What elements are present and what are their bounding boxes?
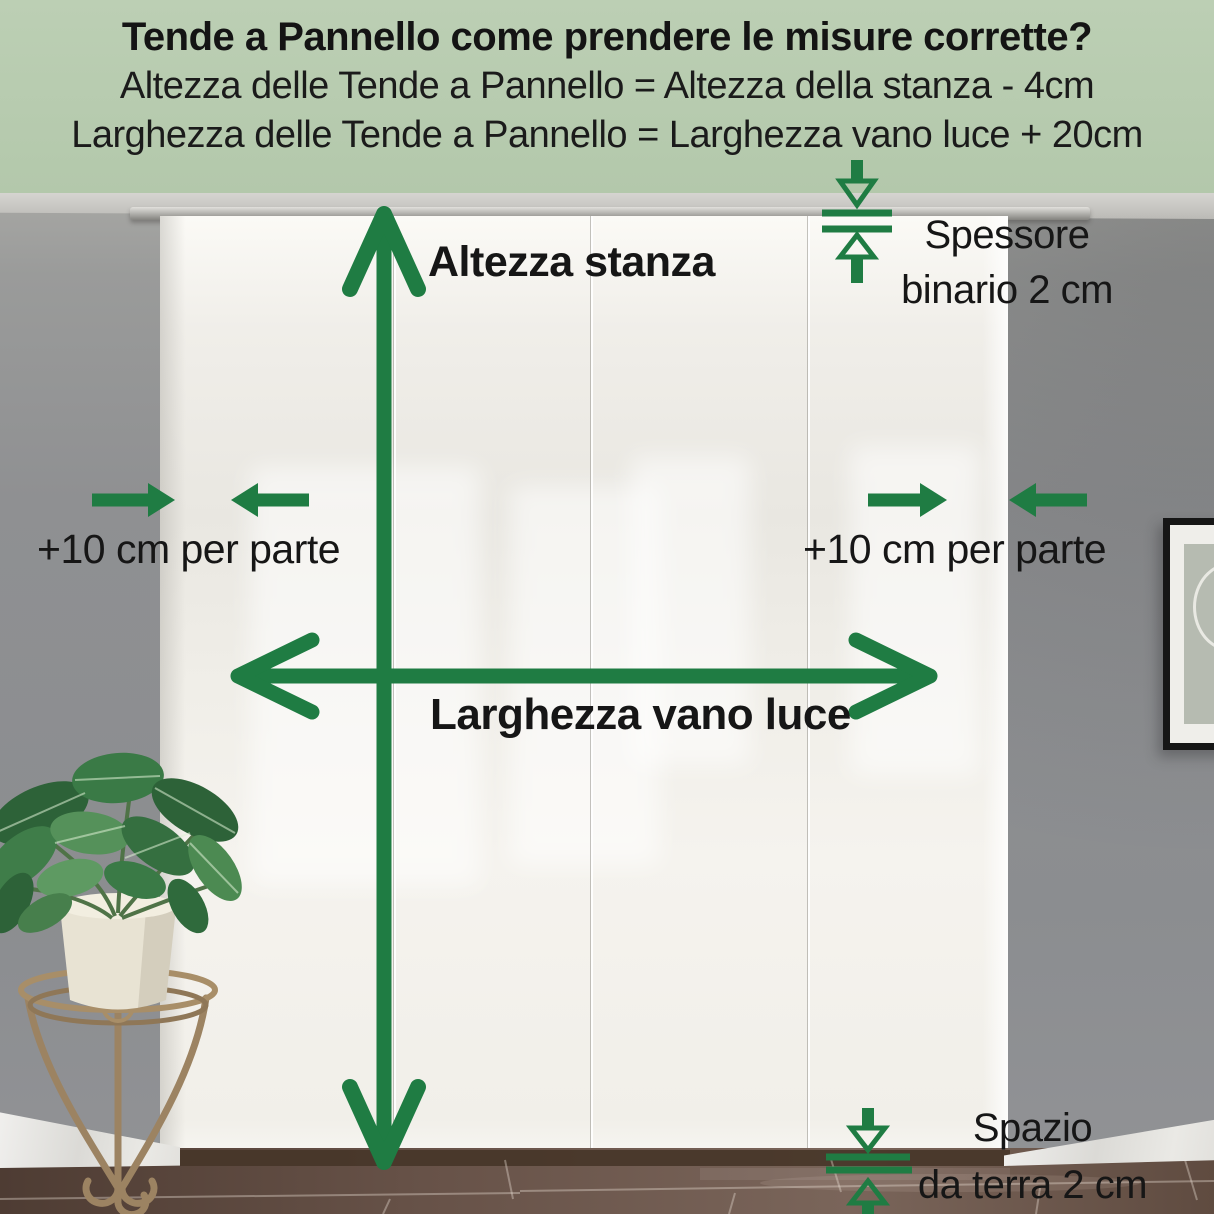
curtain-panels [160,216,1008,1157]
header-banner: Tende a Pannello come prendere le misure… [0,0,1214,193]
rail-thickness-line2: binario 2 cm [882,263,1132,318]
potted-plant [0,738,250,1214]
picture-frame [1163,518,1214,750]
rail-thickness-label: Spessore binario 2 cm [882,208,1132,318]
infographic: Tende a Pannello come prendere le misure… [0,0,1214,1214]
opening-width-label: Larghezza vano luce [430,690,851,740]
page-title: Tende a Pannello come prendere le misure… [122,12,1092,62]
floor-gap-label: Spazio da terra 2 cm [900,1100,1165,1214]
allowance-left-label: +10 cm per parte [37,526,340,573]
curtain-panel-seam [807,216,810,1157]
floor-gap-line1: Spazio [900,1100,1165,1157]
room-height-label: Altezza stanza [428,238,715,287]
allowance-right-label: +10 cm per parte [803,526,1106,573]
height-formula: Altezza delle Tende a Pannello = Altezza… [120,62,1094,111]
rail-thickness-line1: Spessore [882,208,1132,263]
floor-gap-line2: da terra 2 cm [900,1157,1165,1214]
width-formula: Larghezza delle Tende a Pannello = Largh… [71,111,1143,160]
curtain-panel-seam [590,216,593,1157]
curtain-panel-seam [393,216,396,1157]
curtain-reflection [850,446,980,776]
